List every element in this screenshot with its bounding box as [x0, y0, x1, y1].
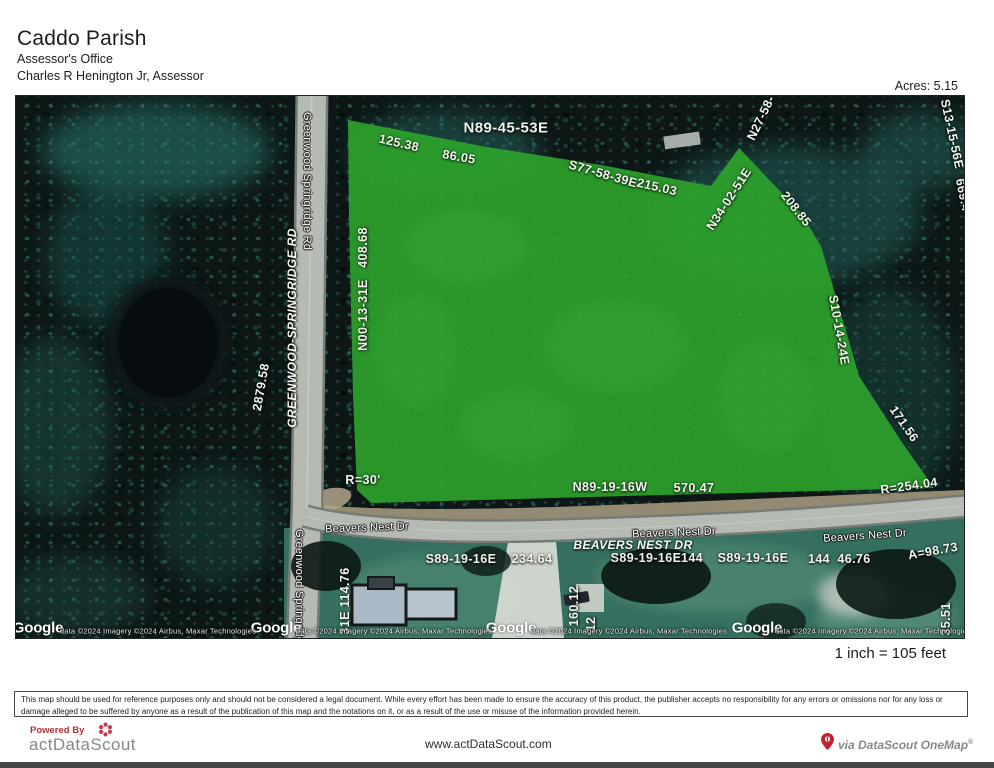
- survey-label: S89-19-16E: [426, 552, 497, 566]
- map-label-layer: 125.38N89-45-53E86.05S77-58-39E215.03N27…: [16, 96, 964, 638]
- street-label: Beavers Nest Dr: [325, 521, 409, 536]
- survey-label: S13-15-56E: [938, 98, 965, 170]
- assessor-name: Charles R Henington Jr, Assessor: [17, 69, 204, 83]
- office-subtitle: Assessor's Office: [17, 52, 113, 66]
- acres-value: Acres: 5.15: [895, 79, 958, 93]
- survey-label: 46.76: [837, 552, 870, 566]
- street-label: Greenwood Springridge Rd: [301, 112, 313, 250]
- website-url: www.actDataScout.com: [425, 737, 552, 751]
- survey-label: 144: [808, 552, 830, 566]
- survey-label: 144: [681, 551, 703, 565]
- survey-label: 669.4: [953, 177, 965, 212]
- street-label: Beavers Nest Dr: [823, 527, 907, 545]
- onemap-credit: via DataScout OneMap®: [838, 738, 973, 752]
- google-watermark: Google: [251, 620, 301, 637]
- survey-label: N34-02-51E: [704, 165, 755, 233]
- survey-label: 208.85: [778, 189, 814, 230]
- survey-label: S10-14-24E: [826, 294, 852, 366]
- google-watermark: Google: [15, 620, 63, 637]
- road-name-label: GREENWOOD-SPRINGRIDGE RD: [285, 228, 299, 428]
- survey-label: 86.05: [441, 147, 476, 167]
- survey-label: S89-19-16E: [718, 551, 789, 565]
- survey-label: 35.51: [939, 602, 953, 635]
- survey-label: A=98.73: [907, 540, 959, 563]
- flower-icon: [98, 722, 113, 742]
- survey-label: N89-19-16W: [573, 480, 648, 494]
- survey-label: N00-13-31E 408.68: [356, 227, 370, 351]
- survey-label: 570.47: [674, 481, 715, 495]
- survey-label: 12: [584, 617, 598, 632]
- map-attribution: data ©2024 Imagery ©2024 Airbus, Maxar T…: [775, 627, 965, 636]
- survey-label: S89-19-16E: [611, 551, 682, 565]
- survey-label: N27-58-: [744, 95, 778, 143]
- map-attribution: data ©2024 Imagery ©2024 Airbus, Maxar T…: [531, 627, 727, 636]
- survey-label: 2879.58: [250, 362, 272, 412]
- google-watermark: Google: [486, 620, 536, 637]
- survey-label: 171.56: [887, 403, 922, 444]
- map-scale-note: 1 inch = 105 feet: [835, 645, 946, 662]
- survey-label: 125.38: [378, 132, 421, 155]
- survey-label: R=30': [345, 473, 380, 487]
- map-pin-icon: [821, 733, 834, 755]
- page-title: Caddo Parish: [17, 27, 147, 51]
- survey-label: 160.12: [567, 586, 581, 627]
- survey-label: 31E 114.76: [338, 567, 352, 634]
- survey-label: S77-58-39E: [567, 158, 639, 191]
- disclaimer-text: This map should be used for reference pu…: [14, 691, 968, 717]
- google-watermark: Google: [732, 620, 782, 637]
- window-bottom-bar: [0, 762, 994, 768]
- street-label: Beavers Nest Dr: [632, 526, 716, 541]
- survey-label: 234.64: [512, 552, 553, 566]
- survey-label: R=254.04: [879, 475, 938, 497]
- parcel-map-canvas: 125.38N89-45-53E86.05S77-58-39E215.03N27…: [15, 95, 965, 639]
- road-name-label: BEAVERS NEST DR: [573, 538, 692, 552]
- survey-label: 215.03: [636, 176, 679, 199]
- survey-label: N89-45-53E: [464, 120, 549, 137]
- map-attribution: data ©2024 Imagery ©2024 Airbus, Maxar T…: [60, 627, 256, 636]
- actdatascout-logo: actDataScout: [29, 735, 136, 755]
- street-label: Greenwood Springridge Rd: [293, 529, 305, 639]
- map-attribution: data ©2024 Imagery ©2024 Airbus, Maxar T…: [296, 627, 492, 636]
- assessor-map-page: Caddo Parish Assessor's Office Charles R…: [0, 0, 994, 768]
